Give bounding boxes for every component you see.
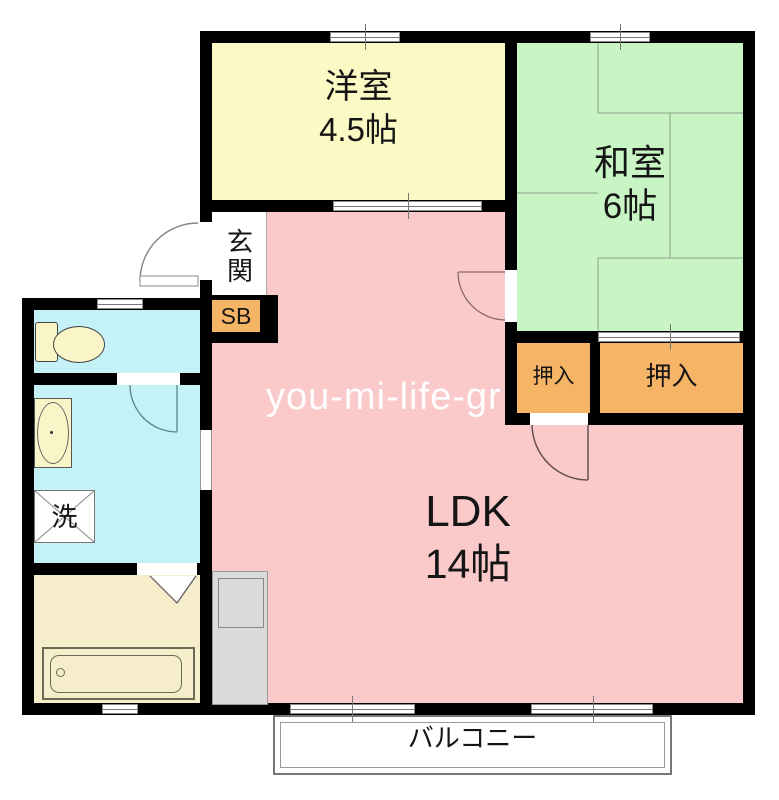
western-room-label: 洋室 4.5帖 bbox=[212, 66, 505, 150]
room-size: 4.5帖 bbox=[212, 109, 505, 150]
wall-top bbox=[200, 31, 753, 43]
wash-basin bbox=[37, 402, 69, 464]
japanese-fusuma bbox=[598, 332, 740, 342]
balcony-window-right bbox=[531, 704, 653, 714]
window-tick bbox=[365, 24, 366, 50]
kitchen-sink bbox=[218, 578, 264, 628]
closet-door-opening bbox=[530, 413, 588, 425]
room-size: 14帖 bbox=[268, 539, 668, 590]
wall-right bbox=[743, 31, 755, 715]
room-name: 和室 bbox=[517, 140, 743, 185]
room-name: 洋室 bbox=[212, 66, 505, 109]
wall-sb-bottom bbox=[200, 332, 278, 343]
window-tick bbox=[670, 324, 671, 350]
toilet-window bbox=[97, 299, 143, 309]
entrance-label: 玄関 bbox=[222, 219, 255, 295]
bathtub-inner bbox=[50, 655, 182, 693]
toilet-bowl bbox=[53, 326, 105, 363]
closet-large-label: 押入 bbox=[600, 360, 743, 393]
entrance-door bbox=[140, 223, 198, 286]
japanese-room-label: 和室 6帖 bbox=[517, 140, 743, 229]
window-tick bbox=[352, 696, 353, 722]
wall-entrance-sb-sep bbox=[212, 295, 260, 300]
room-name: LDK bbox=[268, 484, 668, 539]
bath-window bbox=[102, 704, 138, 714]
floor-plan: you-mi-life-gr bbox=[0, 0, 779, 800]
shoebox-label: SB bbox=[212, 302, 260, 331]
ldk-label: LDK 14帖 bbox=[268, 484, 668, 590]
room-size: 6帖 bbox=[517, 185, 743, 229]
watermark: you-mi-life-gr bbox=[266, 376, 502, 419]
balcony-label: バルコニー bbox=[273, 722, 672, 755]
wall-closet-divider bbox=[590, 343, 600, 413]
toilet-door-opening bbox=[117, 373, 180, 385]
window-tick bbox=[620, 24, 621, 50]
entrance-door-opening bbox=[200, 222, 212, 280]
window-tick bbox=[593, 696, 594, 722]
closet-small-label: 押入 bbox=[517, 364, 590, 390]
bathtub-drain bbox=[56, 668, 65, 677]
washroom-door-opening bbox=[200, 430, 212, 490]
bath-door-opening bbox=[137, 563, 197, 575]
wall-outer-left bbox=[22, 298, 34, 715]
japanese-door-opening bbox=[505, 270, 517, 322]
window-tick bbox=[408, 193, 409, 219]
wash-basin-drain bbox=[50, 431, 53, 434]
wall-center-vertical bbox=[505, 31, 517, 425]
laundry-label: 洗 bbox=[34, 501, 95, 534]
